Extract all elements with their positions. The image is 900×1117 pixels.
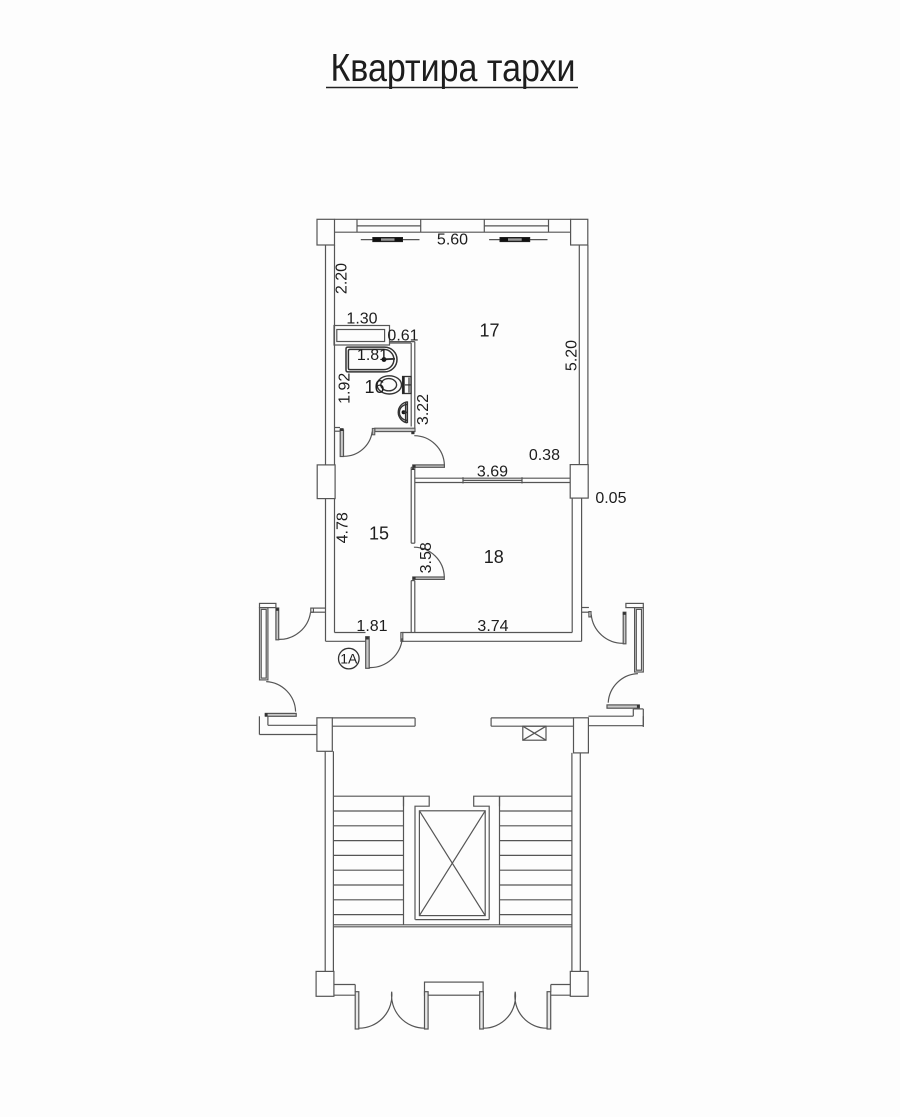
svg-text:0.05: 0.05 bbox=[595, 490, 626, 507]
svg-text:2.20: 2.20 bbox=[334, 263, 351, 294]
svg-text:18: 18 bbox=[484, 547, 504, 567]
svg-text:5.60: 5.60 bbox=[437, 232, 468, 249]
svg-text:5.20: 5.20 bbox=[564, 340, 581, 371]
svg-text:3.69: 3.69 bbox=[477, 464, 508, 481]
svg-text:1.92: 1.92 bbox=[337, 373, 354, 404]
svg-text:16: 16 bbox=[364, 377, 384, 397]
svg-text:Квартира тархи: Квартира тархи bbox=[331, 47, 576, 90]
svg-text:1А: 1А bbox=[340, 651, 358, 667]
svg-text:17: 17 bbox=[479, 321, 499, 341]
svg-text:3.74: 3.74 bbox=[477, 618, 508, 635]
svg-text:1.81: 1.81 bbox=[357, 347, 388, 364]
svg-text:1.30: 1.30 bbox=[346, 311, 377, 328]
svg-text:1.81: 1.81 bbox=[356, 618, 387, 635]
svg-text:0.61: 0.61 bbox=[387, 328, 418, 345]
svg-text:0.38: 0.38 bbox=[529, 447, 560, 464]
svg-text:3.58: 3.58 bbox=[418, 542, 435, 573]
svg-text:3.22: 3.22 bbox=[415, 394, 432, 425]
svg-text:4.78: 4.78 bbox=[334, 512, 351, 543]
svg-text:15: 15 bbox=[369, 523, 389, 543]
